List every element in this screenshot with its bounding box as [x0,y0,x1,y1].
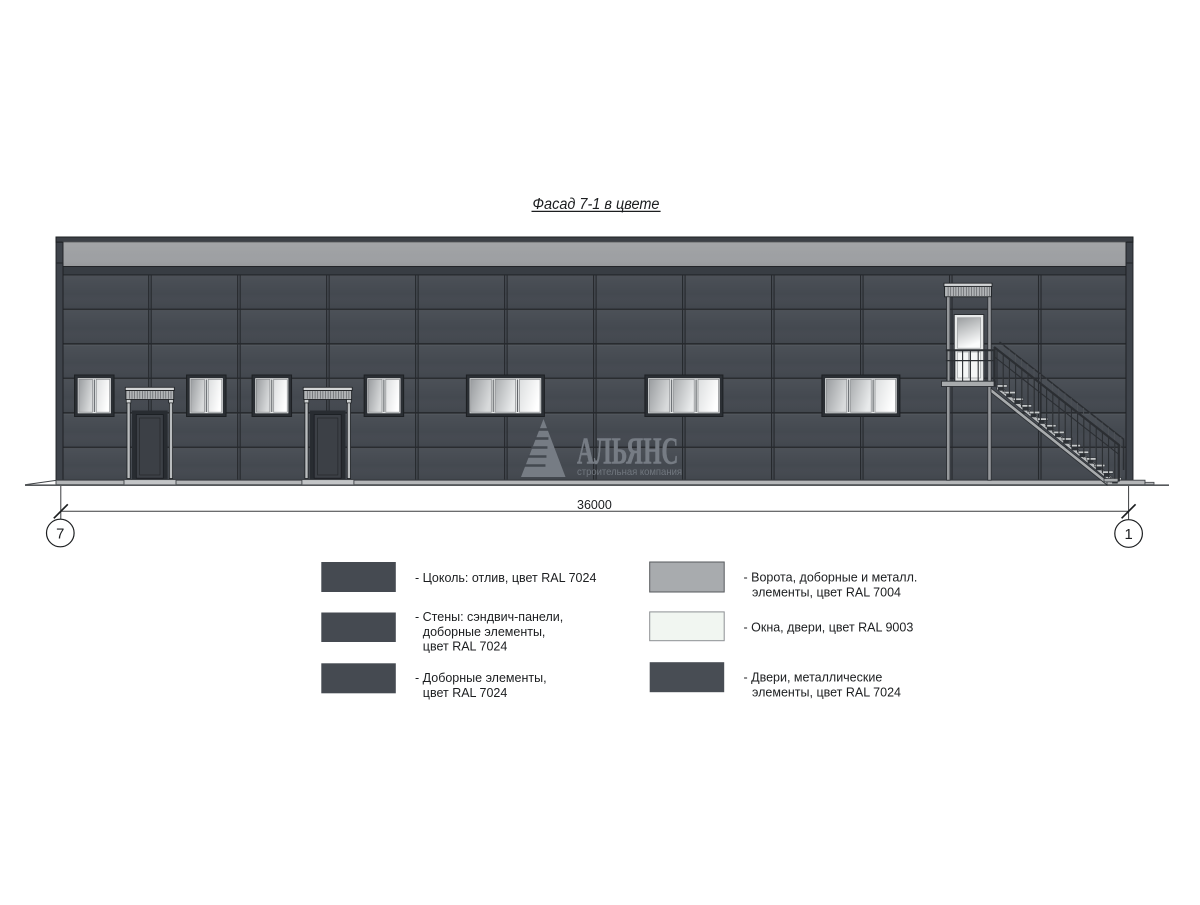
svg-text:элементы, цвет RAL 7004: элементы, цвет RAL 7004 [752,586,901,600]
svg-text:1: 1 [1124,527,1132,543]
svg-text:элементы, цвет RAL 7024: элементы, цвет RAL 7024 [752,685,901,699]
svg-text:- Цоколь: отлив, цвет RAL 7024: - Цоколь: отлив, цвет RAL 7024 [415,571,596,585]
svg-text:цвет RAL 7024: цвет RAL 7024 [423,686,508,700]
svg-text:- Двери, металлические: - Двери, металлические [744,671,883,685]
svg-text:36000: 36000 [577,498,612,512]
svg-text:- Ворота, доборные и металл.: - Ворота, доборные и металл. [744,571,918,585]
svg-text:Фасад 7-1 в цвете: Фасад 7-1 в цвете [533,196,660,213]
svg-text:цвет RAL 7024: цвет RAL 7024 [423,640,508,654]
svg-text:доборные элементы,: доборные элементы, [423,625,546,639]
svg-text:- Окна, двери, цвет RAL 9003: - Окна, двери, цвет RAL 9003 [744,621,914,635]
svg-text:7: 7 [56,527,64,543]
svg-text:- Стены: сэндвич-панели,: - Стены: сэндвич-панели, [415,610,563,624]
svg-text:строительная компания: строительная компания [577,467,682,478]
svg-text:- Доборные элементы,: - Доборные элементы, [415,671,547,685]
